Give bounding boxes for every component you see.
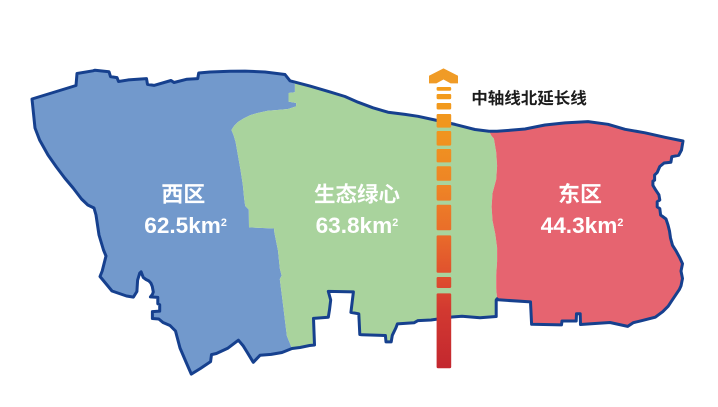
- svg-text:62.5km2: 62.5km2: [144, 213, 227, 238]
- svg-text:63.8km2: 63.8km2: [316, 213, 399, 238]
- svg-text:44.3km2: 44.3km2: [541, 213, 624, 238]
